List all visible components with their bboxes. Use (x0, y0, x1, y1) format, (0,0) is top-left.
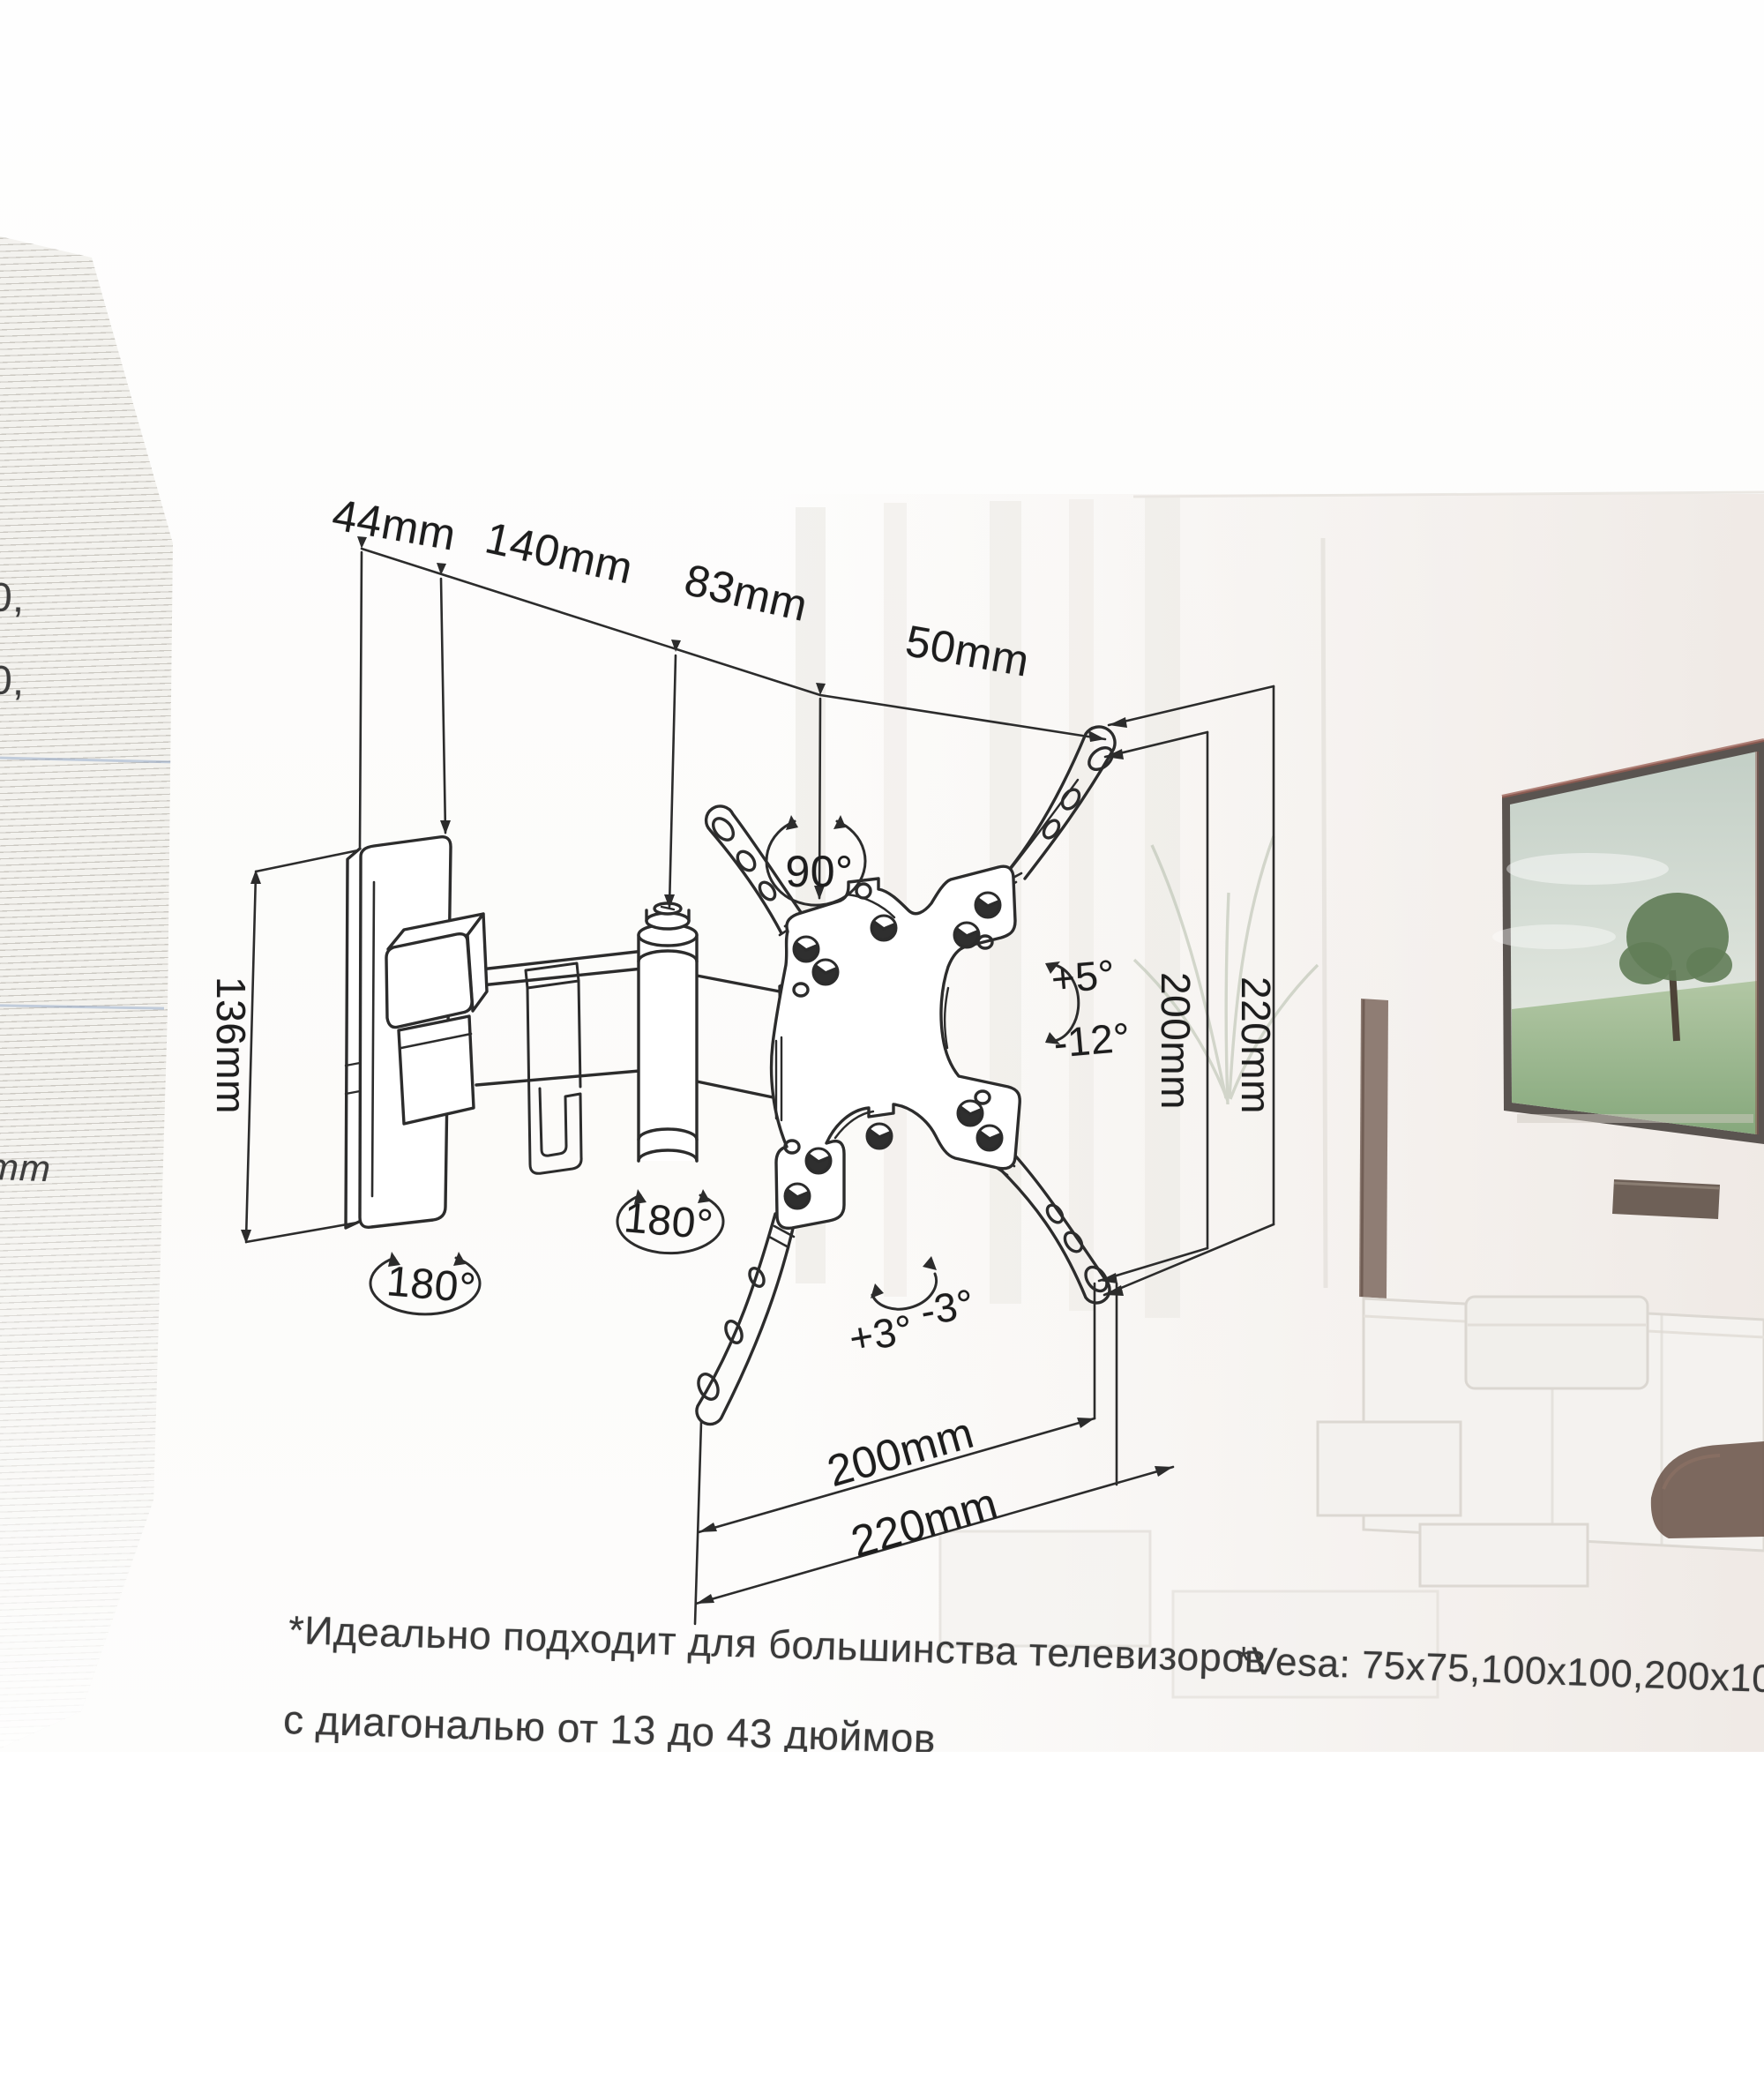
angle-label-roll-minus: -3° (916, 1279, 977, 1336)
footnote-ru-line1: *Идеально подходит для большинства телев… (288, 1607, 1267, 1682)
angle-label-roll-plus: +3° (846, 1305, 917, 1363)
angle-label-tilt-up: +5° (1050, 950, 1117, 1003)
dim-label-h220mm: 220mm (846, 1478, 1004, 1568)
dim-label-50mm: 50mm (902, 615, 1034, 687)
angle-label-wall-180: 180° (385, 1257, 478, 1313)
angle-label-elbow-180: 180° (622, 1193, 715, 1250)
angle-label-swivel-90: 90° (785, 846, 853, 897)
packaging-scan: 0, 0, mm 44mm 140mm 83mm 50mm 136mm 200m… (0, 0, 1764, 2095)
footnote-vesa: *Vesa: 75x75,100x100,200x100,200x2 (1235, 1639, 1764, 1707)
dim-label-v220mm: 220mm (1232, 976, 1280, 1114)
scan-bottom-margin (0, 1752, 1764, 2095)
dim-label-44mm: 44mm (329, 489, 460, 561)
dim-label-83mm: 83mm (680, 554, 812, 632)
dim-label-v200mm: 200mm (1152, 972, 1200, 1110)
dim-label-136mm: 136mm (207, 976, 255, 1114)
angle-label-tilt-down: -12° (1051, 1013, 1132, 1066)
dim-label-140mm: 140mm (481, 512, 638, 594)
dim-label-h200mm: 200mm (822, 1407, 980, 1497)
